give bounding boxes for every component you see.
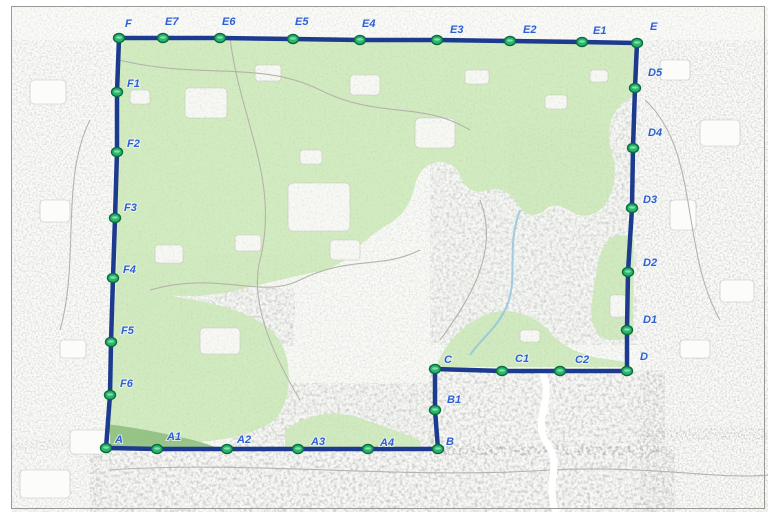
boundary-point-marker-highlight-F1: [114, 90, 120, 93]
boundary-point-marker-highlight-D: [624, 369, 630, 372]
boundary-point-label-A3: A3: [310, 436, 325, 448]
boundary-point-label-E1: E1: [593, 25, 606, 37]
boundary-point-label-E7: E7: [165, 16, 179, 28]
boundary-point-label-A2: A2: [236, 434, 251, 446]
boundary-point-label-A1: A1: [166, 431, 181, 443]
boundary-point-marker-highlight-D5: [632, 86, 638, 89]
boundary-point-marker-highlight-A: [103, 446, 109, 449]
cadastral-map-svg: FE7E6E5E4E3E2E1ED5D4D3D2D1DC2C1CB1BA4A3A…: [0, 0, 768, 512]
boundary-point-label-B1: B1: [447, 394, 461, 406]
boundary-point-marker-highlight-C1: [499, 369, 505, 372]
boundary-point-marker-highlight-E2: [507, 39, 513, 42]
boundary-point-marker-highlight-E4: [357, 38, 363, 41]
boundary-point-label-E2: E2: [523, 24, 536, 36]
boundary-point-label-F6: F6: [120, 378, 134, 390]
boundary-point-marker-highlight-F3: [112, 216, 118, 219]
boundary-point-marker-highlight-E3: [434, 38, 440, 41]
boundary-point-marker-highlight-F: [116, 36, 122, 39]
boundary-point-marker-highlight-F5: [108, 340, 114, 343]
boundary-point-label-E3: E3: [450, 24, 463, 36]
boundary-point-marker-highlight-C: [432, 367, 438, 370]
boundary-point-marker-highlight-A2: [224, 447, 230, 450]
boundary-point-label-C1: C1: [515, 353, 529, 365]
boundary-point-label-D5: D5: [648, 67, 663, 79]
boundary-point-label-B: B: [446, 436, 454, 448]
boundary-point-marker-highlight-E5: [290, 37, 296, 40]
boundary-point-label-E5: E5: [295, 16, 309, 28]
boundary-point-label-E4: E4: [362, 18, 375, 30]
boundary-point-label-F5: F5: [121, 325, 135, 337]
boundary-point-marker-highlight-B1: [432, 408, 438, 411]
boundary-point-marker-highlight-F2: [114, 150, 120, 153]
boundary-point-label-E: E: [650, 21, 658, 33]
boundary-point-marker-highlight-A1: [154, 447, 160, 450]
boundary-point-marker-highlight-A4: [365, 447, 371, 450]
boundary-point-marker-highlight-D2: [625, 270, 631, 273]
boundary-point-label-C: C: [444, 354, 453, 366]
boundary-point-label-D3: D3: [643, 194, 657, 206]
boundary-point-marker-highlight-F4: [110, 276, 116, 279]
boundary-point-label-D4: D4: [648, 127, 662, 139]
boundary-point-label-F: F: [125, 18, 132, 30]
boundary-point-marker-highlight-D3: [629, 206, 635, 209]
boundary-point-marker-highlight-E1: [579, 40, 585, 43]
boundary-point-label-F3: F3: [124, 202, 137, 214]
boundary-point-label-E6: E6: [222, 16, 236, 28]
boundary-point-label-F4: F4: [123, 264, 136, 276]
boundary-point-marker-highlight-E: [634, 41, 640, 44]
boundary-point-label-C2: C2: [575, 354, 589, 366]
boundary-point-marker-highlight-E6: [217, 36, 223, 39]
boundary-point-label-A: A: [114, 434, 123, 446]
boundary-point-marker-highlight-A3: [295, 447, 301, 450]
boundary-point-marker-highlight-B: [435, 447, 441, 450]
boundary-point-marker-highlight-E7: [160, 36, 166, 39]
boundary-point-label-D: D: [640, 351, 648, 363]
map-canvas[interactable]: FE7E6E5E4E3E2E1ED5D4D3D2D1DC2C1CB1BA4A3A…: [0, 0, 768, 512]
boundary-point-marker-highlight-C2: [557, 369, 563, 372]
boundary-point-label-D1: D1: [643, 314, 657, 326]
boundary-point-marker-highlight-F6: [107, 393, 113, 396]
boundary-point-label-F1: F1: [127, 78, 140, 90]
boundary-point-marker-highlight-D1: [624, 328, 630, 331]
boundary-point-label-A4: A4: [379, 437, 394, 449]
boundary-point-label-F2: F2: [127, 138, 140, 150]
boundary-point-label-D2: D2: [643, 257, 657, 269]
boundary-point-marker-highlight-D4: [630, 146, 636, 149]
